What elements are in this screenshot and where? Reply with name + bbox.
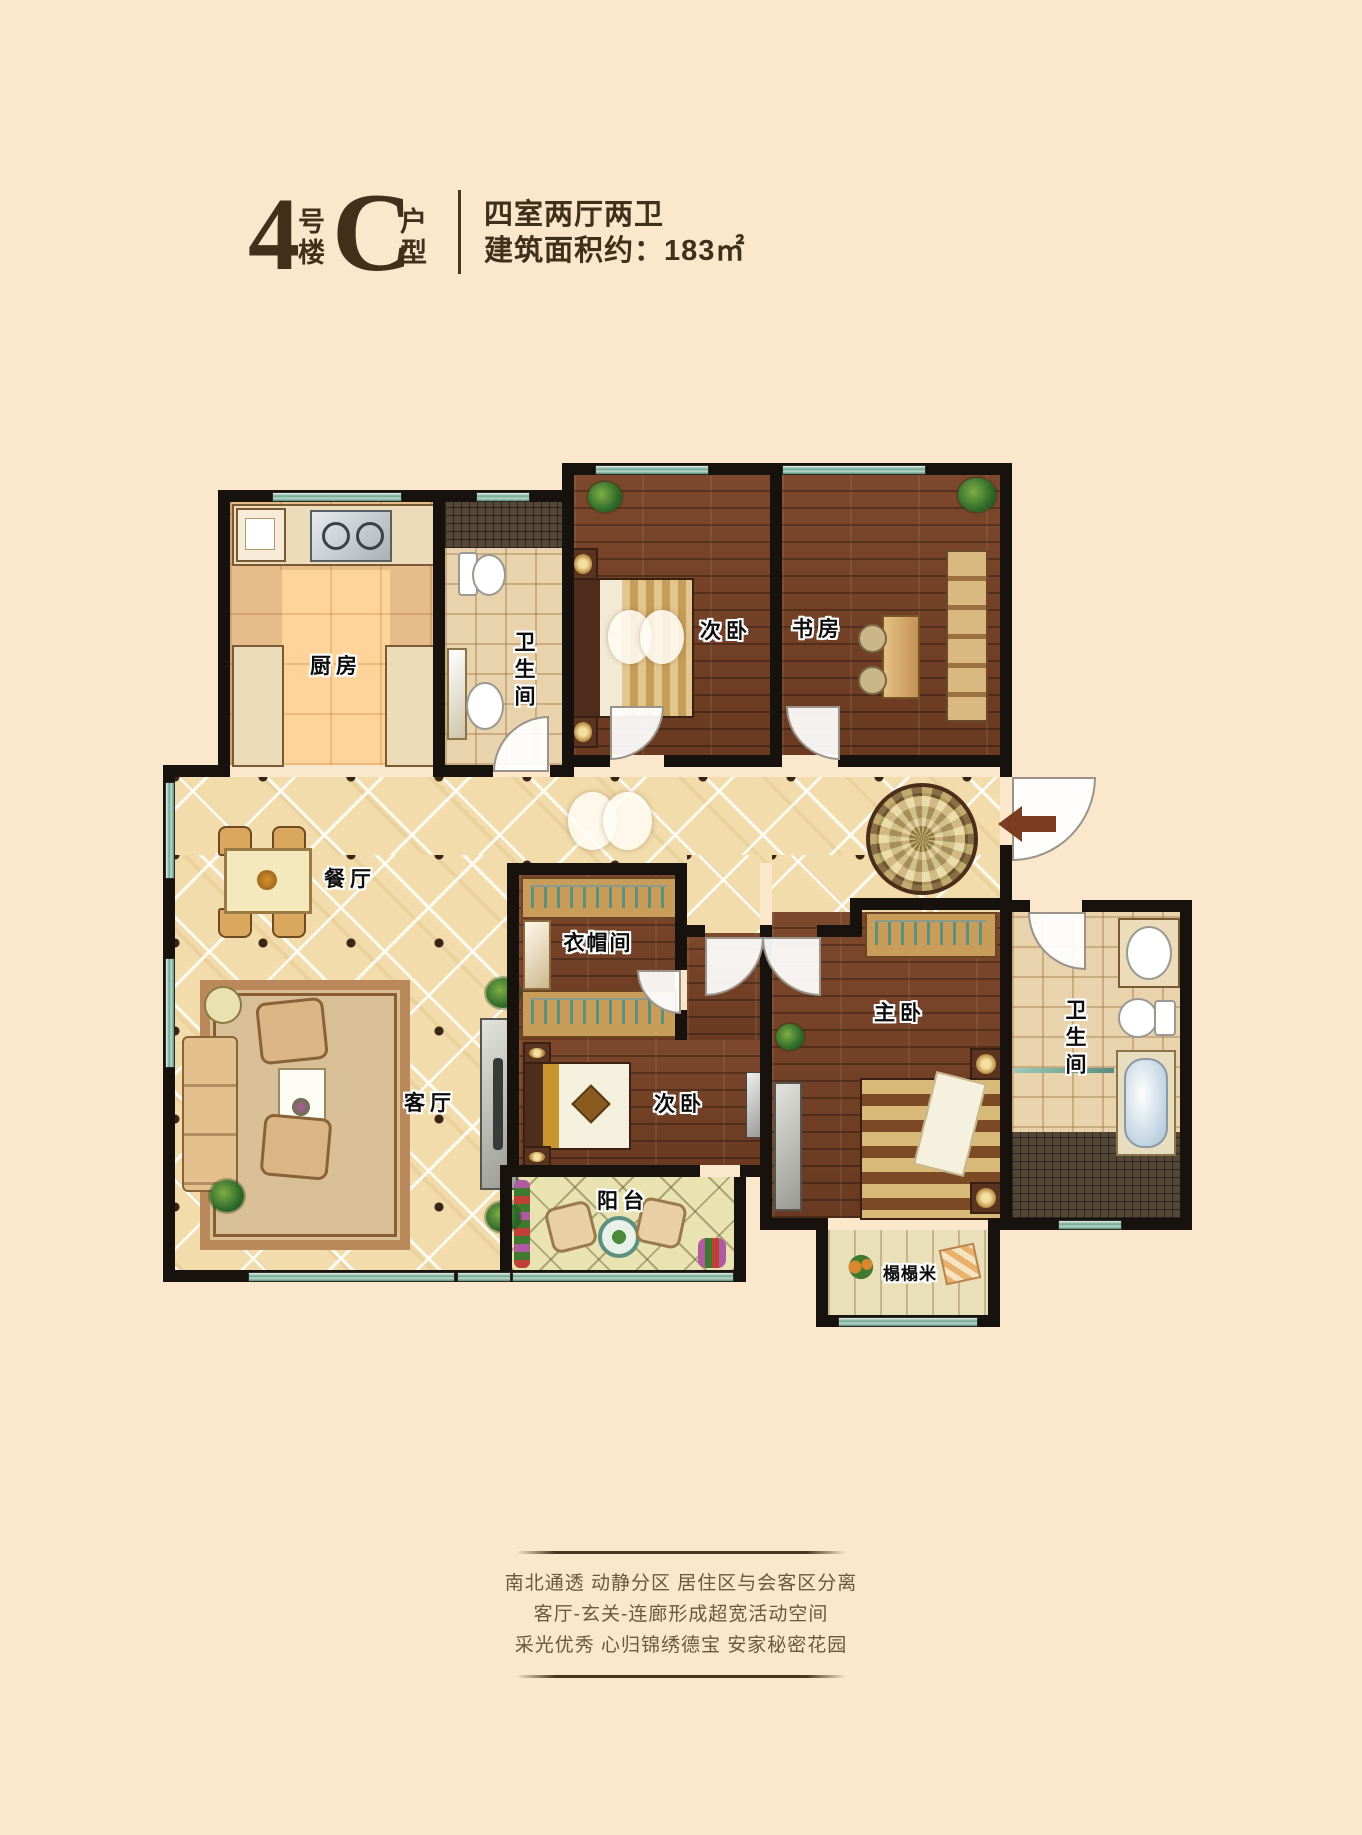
bathtub-icon [1116,1050,1176,1156]
sofa [182,1036,238,1192]
window [165,958,175,1068]
bath2-sink [1126,926,1172,980]
unit-suffix-top: 户 [400,207,427,238]
room-label-bedroom3: 次卧 [654,1088,706,1118]
armchair [255,997,329,1066]
poster-page: { "header": { "building_number": "4", "b… [0,0,1362,1835]
wall [550,765,574,777]
toilet-bowl [472,554,506,596]
wall [1000,845,1012,900]
kitchen-cabinet [385,645,437,767]
wall [562,463,574,777]
wall [760,925,772,1230]
nightstand [970,1048,1002,1080]
kitchen-cabinet [232,645,284,767]
wall [664,755,782,767]
room-label-balcony: 阳台 [597,1185,649,1215]
tv-icon [493,1058,503,1150]
wall [675,925,705,937]
window [512,1272,734,1282]
footer-divider-top [516,1551,846,1554]
room-label-master: 主卧 [874,997,926,1027]
burner-icon [356,522,384,550]
bookshelf [946,550,988,722]
spec-area: 建筑面积约：183㎡ [484,233,904,269]
bath1-mirror [447,648,467,740]
building-suffix-bottom: 楼 [298,238,325,269]
arrow-shaft [1020,816,1056,832]
balcony-table [598,1216,640,1258]
building-number: 4 [248,193,300,277]
ceiling-light-icon [568,792,652,850]
closet-mirror [523,920,551,990]
wall [1000,463,1012,777]
wall [675,1010,687,1040]
bath1-sink [466,682,504,730]
armchair [259,1113,332,1181]
plant-icon [210,1180,244,1212]
closet-rack [521,877,677,919]
room-label-bedroom2: 次卧 [700,615,752,645]
window [1058,1220,1122,1230]
wall [500,1165,512,1282]
wall [507,863,687,875]
room-label-study: 书房 [792,613,844,643]
tatami-pillow [939,1243,982,1286]
toilet-icon [1118,996,1174,1038]
toilet-icon [458,552,502,608]
dining-table [224,848,312,914]
window [457,1272,511,1282]
bathtub-basin [1124,1058,1168,1148]
plant-icon [958,478,996,512]
balcony-flowers [698,1238,726,1268]
bed-pillow [913,1071,987,1177]
bed-picture [571,1084,611,1124]
window [476,492,530,502]
footer-block: 南北通透 动静分区 居住区与会客区分离 客厅-玄关-连廊形成超宽活动空间 采光优… [411,1551,951,1678]
plant-icon [588,482,622,512]
wall [734,1177,746,1282]
wall [1000,900,1012,1230]
wall [433,765,493,777]
nightstand [970,1182,1002,1214]
toilet-bowl [1118,998,1158,1038]
floorplan: 厨房 卫生间 次卧 书房 餐厅 衣帽间 客厅 次卧 阳台 主卧 卫生间 榻榻米 [160,420,1220,1350]
wall [838,755,1012,767]
wall [770,463,782,767]
room-label-bath2: 卫生间 [1064,998,1088,1079]
wall [1180,900,1192,1230]
unit-suffix-bottom: 型 [400,238,427,269]
entry-medallion-rug [866,783,978,895]
spec-area-value: 183㎡ [664,235,745,267]
window [165,782,175,879]
room-label-kitchen: 厨房 [310,650,362,680]
unit-suffix: 户 型 [400,207,427,269]
wall [507,863,519,1165]
room-label-dining: 餐厅 [324,863,376,893]
kitchen-sink [236,508,286,562]
desk [882,615,920,699]
wall [740,1165,760,1177]
wall [507,1165,700,1177]
corridor-floor [687,855,760,933]
building-suffix-top: 号 [298,207,325,238]
wall [218,490,230,777]
spec-rooms: 四室两厅两卫 [484,197,904,233]
tagline-line3: 采光优秀 心归锦绣德宝 安家秘密花园 [411,1630,951,1661]
master-wardrobe [865,912,997,958]
desk-chair [858,624,887,653]
room-label-living: 客厅 [404,1087,456,1117]
window [272,492,402,502]
toilet-tank [1154,1000,1176,1036]
room-label-bath1: 卫生间 [513,630,537,711]
spec-area-label: 建筑面积约： [484,235,664,267]
wall [1082,900,1192,912]
window [838,1317,978,1327]
window [248,1272,455,1282]
title-divider [458,190,461,274]
tagline-line1: 南北通透 动静分区 居住区与会客区分离 [411,1568,951,1599]
tagline-line2: 客厅-玄关-连廊形成超宽活动空间 [411,1599,951,1630]
building-suffix: 号 楼 [298,207,325,269]
master-tv-cabinet [774,1082,802,1211]
ceiling-light-icon [608,610,684,664]
sink-basin [245,518,275,550]
window [782,465,926,475]
wall [816,1230,828,1327]
desk-chair [858,666,887,695]
plant-icon [776,1024,804,1050]
wall [1012,900,1030,912]
table-flowers [292,1098,310,1116]
tatami-flowers [846,1254,876,1280]
wall [433,490,445,777]
wall [860,898,1012,910]
wall [772,1218,828,1230]
room-label-tatami: 榻榻米 [883,1260,937,1285]
window [595,465,709,475]
bed [523,1062,631,1150]
wall [675,863,687,970]
side-table [204,986,242,1024]
room-label-closet: 衣帽间 [564,927,633,957]
bath1-mosaic [445,502,562,548]
wall [988,1230,1000,1327]
spec-block: 四室两厅两卫 建筑面积约：183㎡ [484,197,904,269]
table-centerpiece [257,870,277,890]
arrow-head [998,806,1022,842]
stove-icon [310,510,392,562]
entry-arrow-icon [998,806,1058,842]
footer-divider-bottom [516,1675,846,1678]
nightstand [523,1042,551,1064]
burner-icon [322,522,350,550]
